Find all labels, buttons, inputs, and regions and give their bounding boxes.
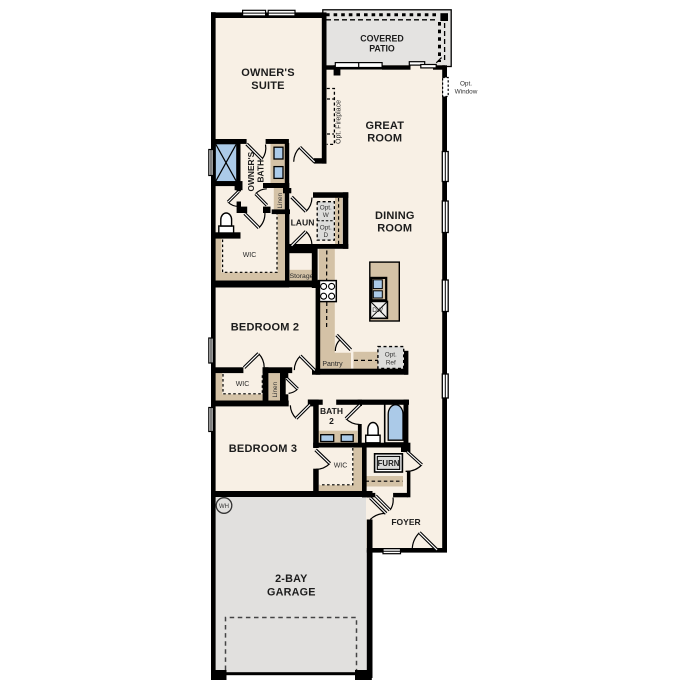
svg-text:FURN: FURN xyxy=(378,459,400,468)
svg-text:COVERED: COVERED xyxy=(360,34,404,44)
svg-text:PATIO: PATIO xyxy=(369,43,395,53)
svg-text:WIC: WIC xyxy=(236,381,250,388)
svg-text:FOYER: FOYER xyxy=(391,517,420,527)
svg-text:WIC: WIC xyxy=(243,252,257,259)
svg-text:Window: Window xyxy=(455,89,478,96)
svg-text:Opt.: Opt. xyxy=(320,205,332,212)
svg-text:OWNER'S: OWNER'S xyxy=(241,67,295,79)
svg-text:WH: WH xyxy=(219,504,229,510)
svg-text:GREAT: GREAT xyxy=(365,120,404,132)
svg-text:WIC: WIC xyxy=(334,463,348,470)
svg-text:Opt.: Opt. xyxy=(320,225,332,232)
svg-text:D: D xyxy=(323,232,328,239)
svg-text:BATH: BATH xyxy=(256,160,266,183)
svg-text:W: W xyxy=(323,212,330,219)
svg-text:LAUN: LAUN xyxy=(291,218,315,228)
svg-text:Ref: Ref xyxy=(386,359,396,366)
svg-text:Storage: Storage xyxy=(290,273,314,280)
svg-text:Linen: Linen xyxy=(272,381,279,397)
svg-text:BEDROOM 3: BEDROOM 3 xyxy=(229,443,297,455)
svg-text:ROOM: ROOM xyxy=(377,222,412,234)
svg-text:Opt.: Opt. xyxy=(460,81,472,88)
svg-text:Linen: Linen xyxy=(277,192,284,208)
svg-text:2-BAY: 2-BAY xyxy=(275,573,308,585)
svg-text:BATH: BATH xyxy=(320,406,343,416)
svg-text:OWNER'S: OWNER'S xyxy=(246,151,256,191)
svg-text:GARAGE: GARAGE xyxy=(267,586,316,598)
svg-text:2: 2 xyxy=(329,416,334,426)
svg-text:Opt. Fireplace: Opt. Fireplace xyxy=(336,100,343,144)
svg-text:DINING: DINING xyxy=(375,210,415,222)
svg-text:SUITE: SUITE xyxy=(251,80,284,92)
svg-text:BEDROOM 2: BEDROOM 2 xyxy=(231,322,299,334)
svg-text:Opt.: Opt. xyxy=(385,351,397,358)
svg-text:ROOM: ROOM xyxy=(367,132,402,144)
svg-text:Pantry: Pantry xyxy=(322,361,343,368)
svg-text:DW: DW xyxy=(372,307,384,314)
